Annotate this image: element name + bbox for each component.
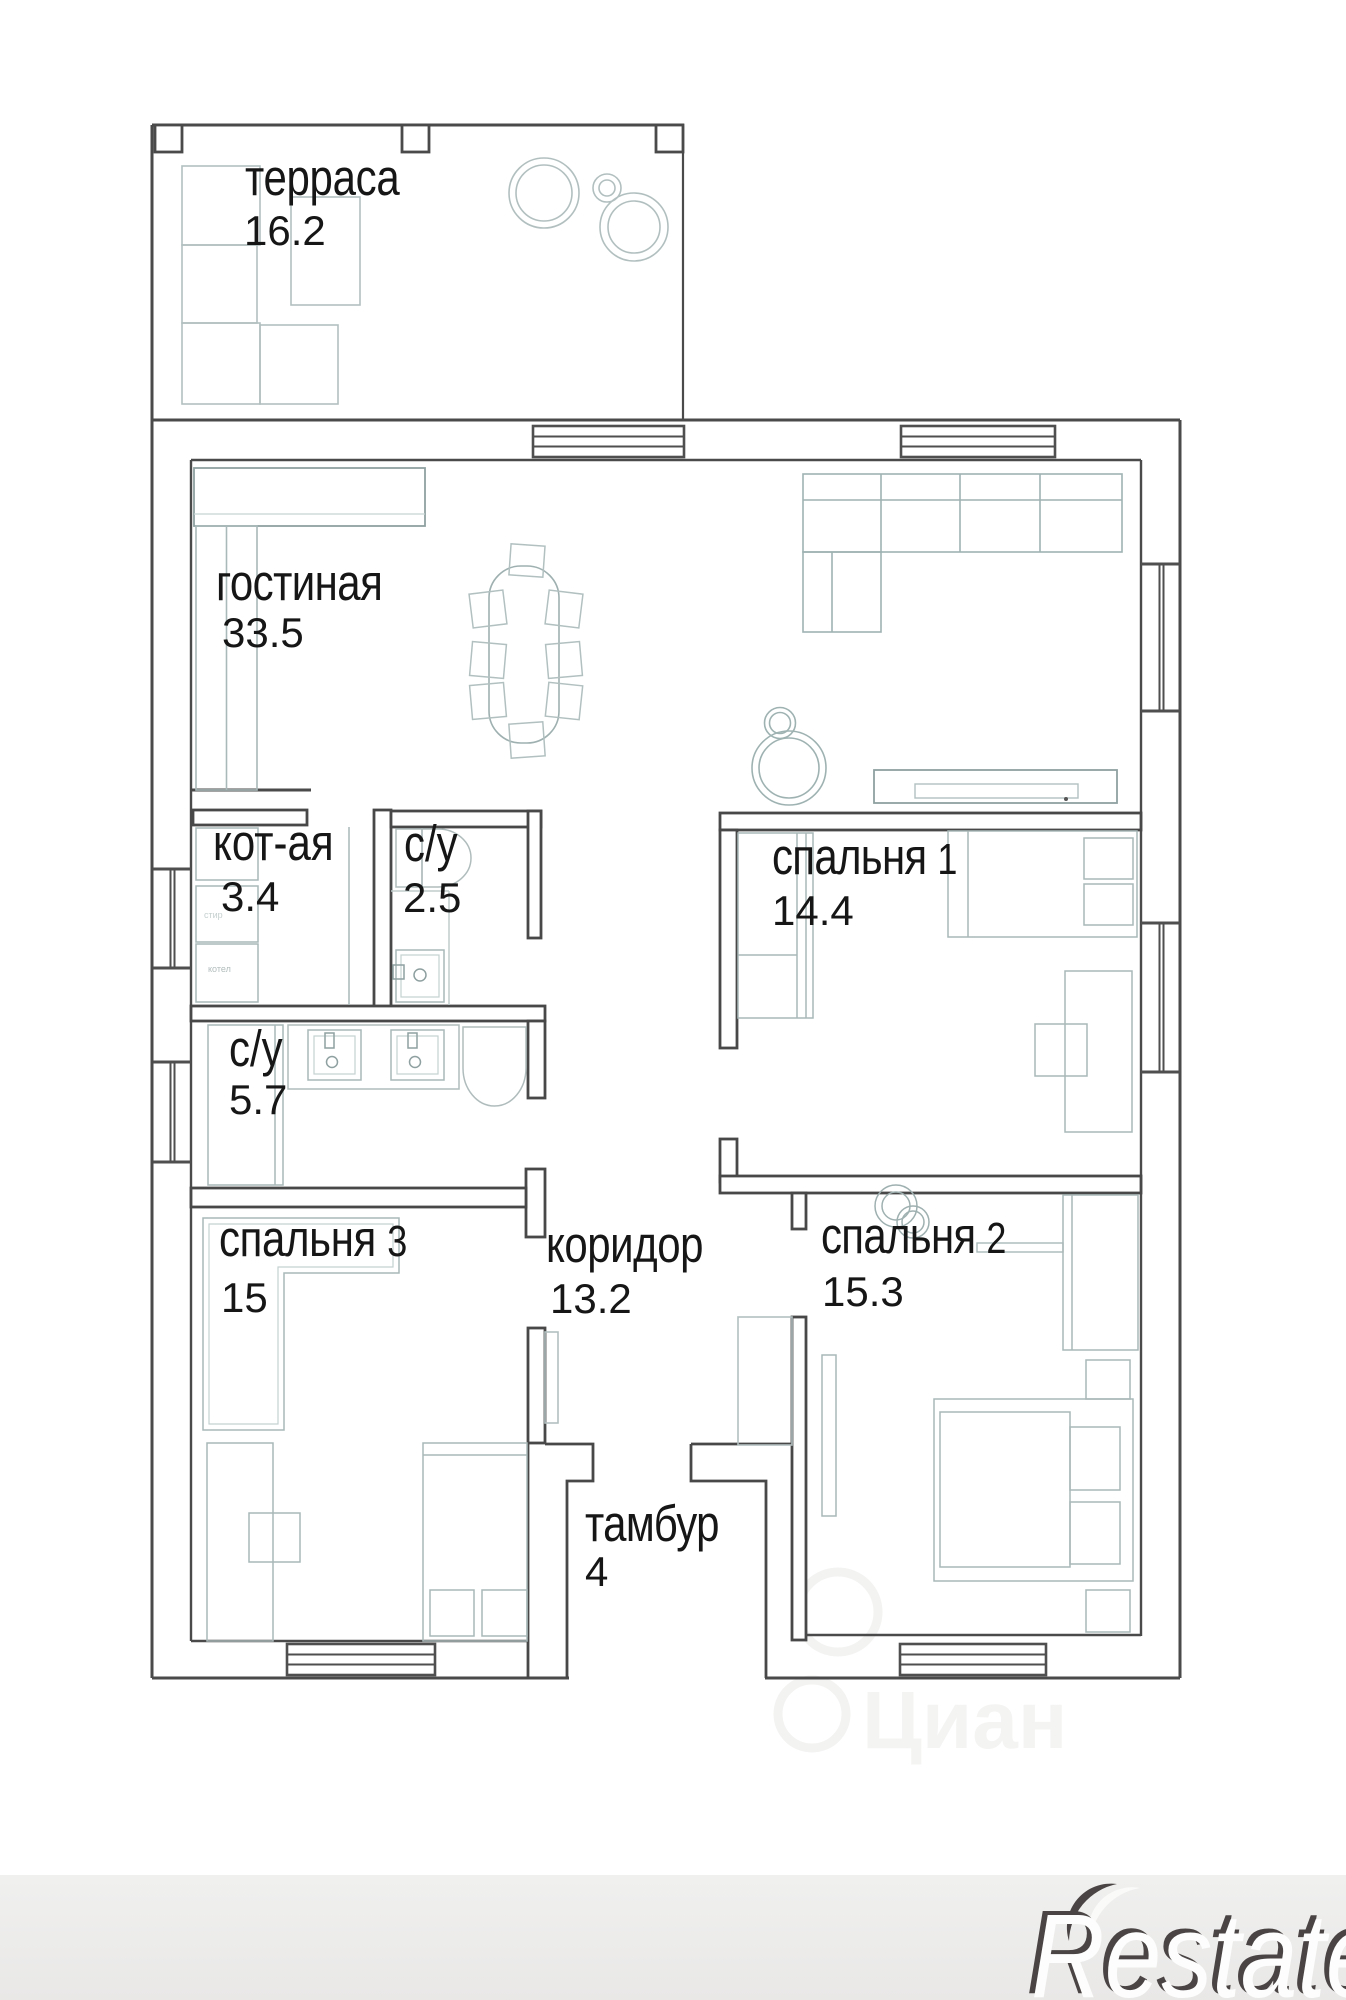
svg-text:4: 4 [585, 1548, 608, 1595]
svg-text:кот-ая: кот-ая [213, 814, 334, 871]
svg-text:тамбур: тамбур [585, 1495, 719, 1552]
svg-text:спальня 3: спальня 3 [219, 1210, 407, 1267]
svg-text:стир: стир [204, 910, 223, 920]
svg-text:15.3: 15.3 [822, 1268, 904, 1315]
svg-text:13.2: 13.2 [550, 1275, 632, 1322]
svg-text:спальня 1: спальня 1 [772, 828, 957, 885]
svg-text:5.7: 5.7 [229, 1076, 287, 1123]
svg-text:16.2: 16.2 [244, 207, 326, 254]
svg-text:33.5: 33.5 [222, 609, 304, 656]
svg-text:с/у: с/у [229, 1020, 283, 1077]
svg-text:коридор: коридор [546, 1216, 703, 1273]
svg-text:терраса: терраса [245, 149, 401, 206]
svg-text:15: 15 [221, 1274, 268, 1321]
svg-text:Restate: Restate [1031, 1888, 1346, 2000]
svg-text:с/у: с/у [404, 815, 458, 872]
svg-text:3.4: 3.4 [221, 873, 279, 920]
svg-text:Циан: Циан [862, 1675, 1067, 1766]
svg-text:котел: котел [208, 964, 231, 974]
svg-text:14.4: 14.4 [772, 887, 854, 934]
svg-text:спальня 2: спальня 2 [821, 1207, 1006, 1264]
svg-text:гостиная: гостиная [216, 554, 382, 611]
svg-text:2.5: 2.5 [403, 874, 461, 921]
